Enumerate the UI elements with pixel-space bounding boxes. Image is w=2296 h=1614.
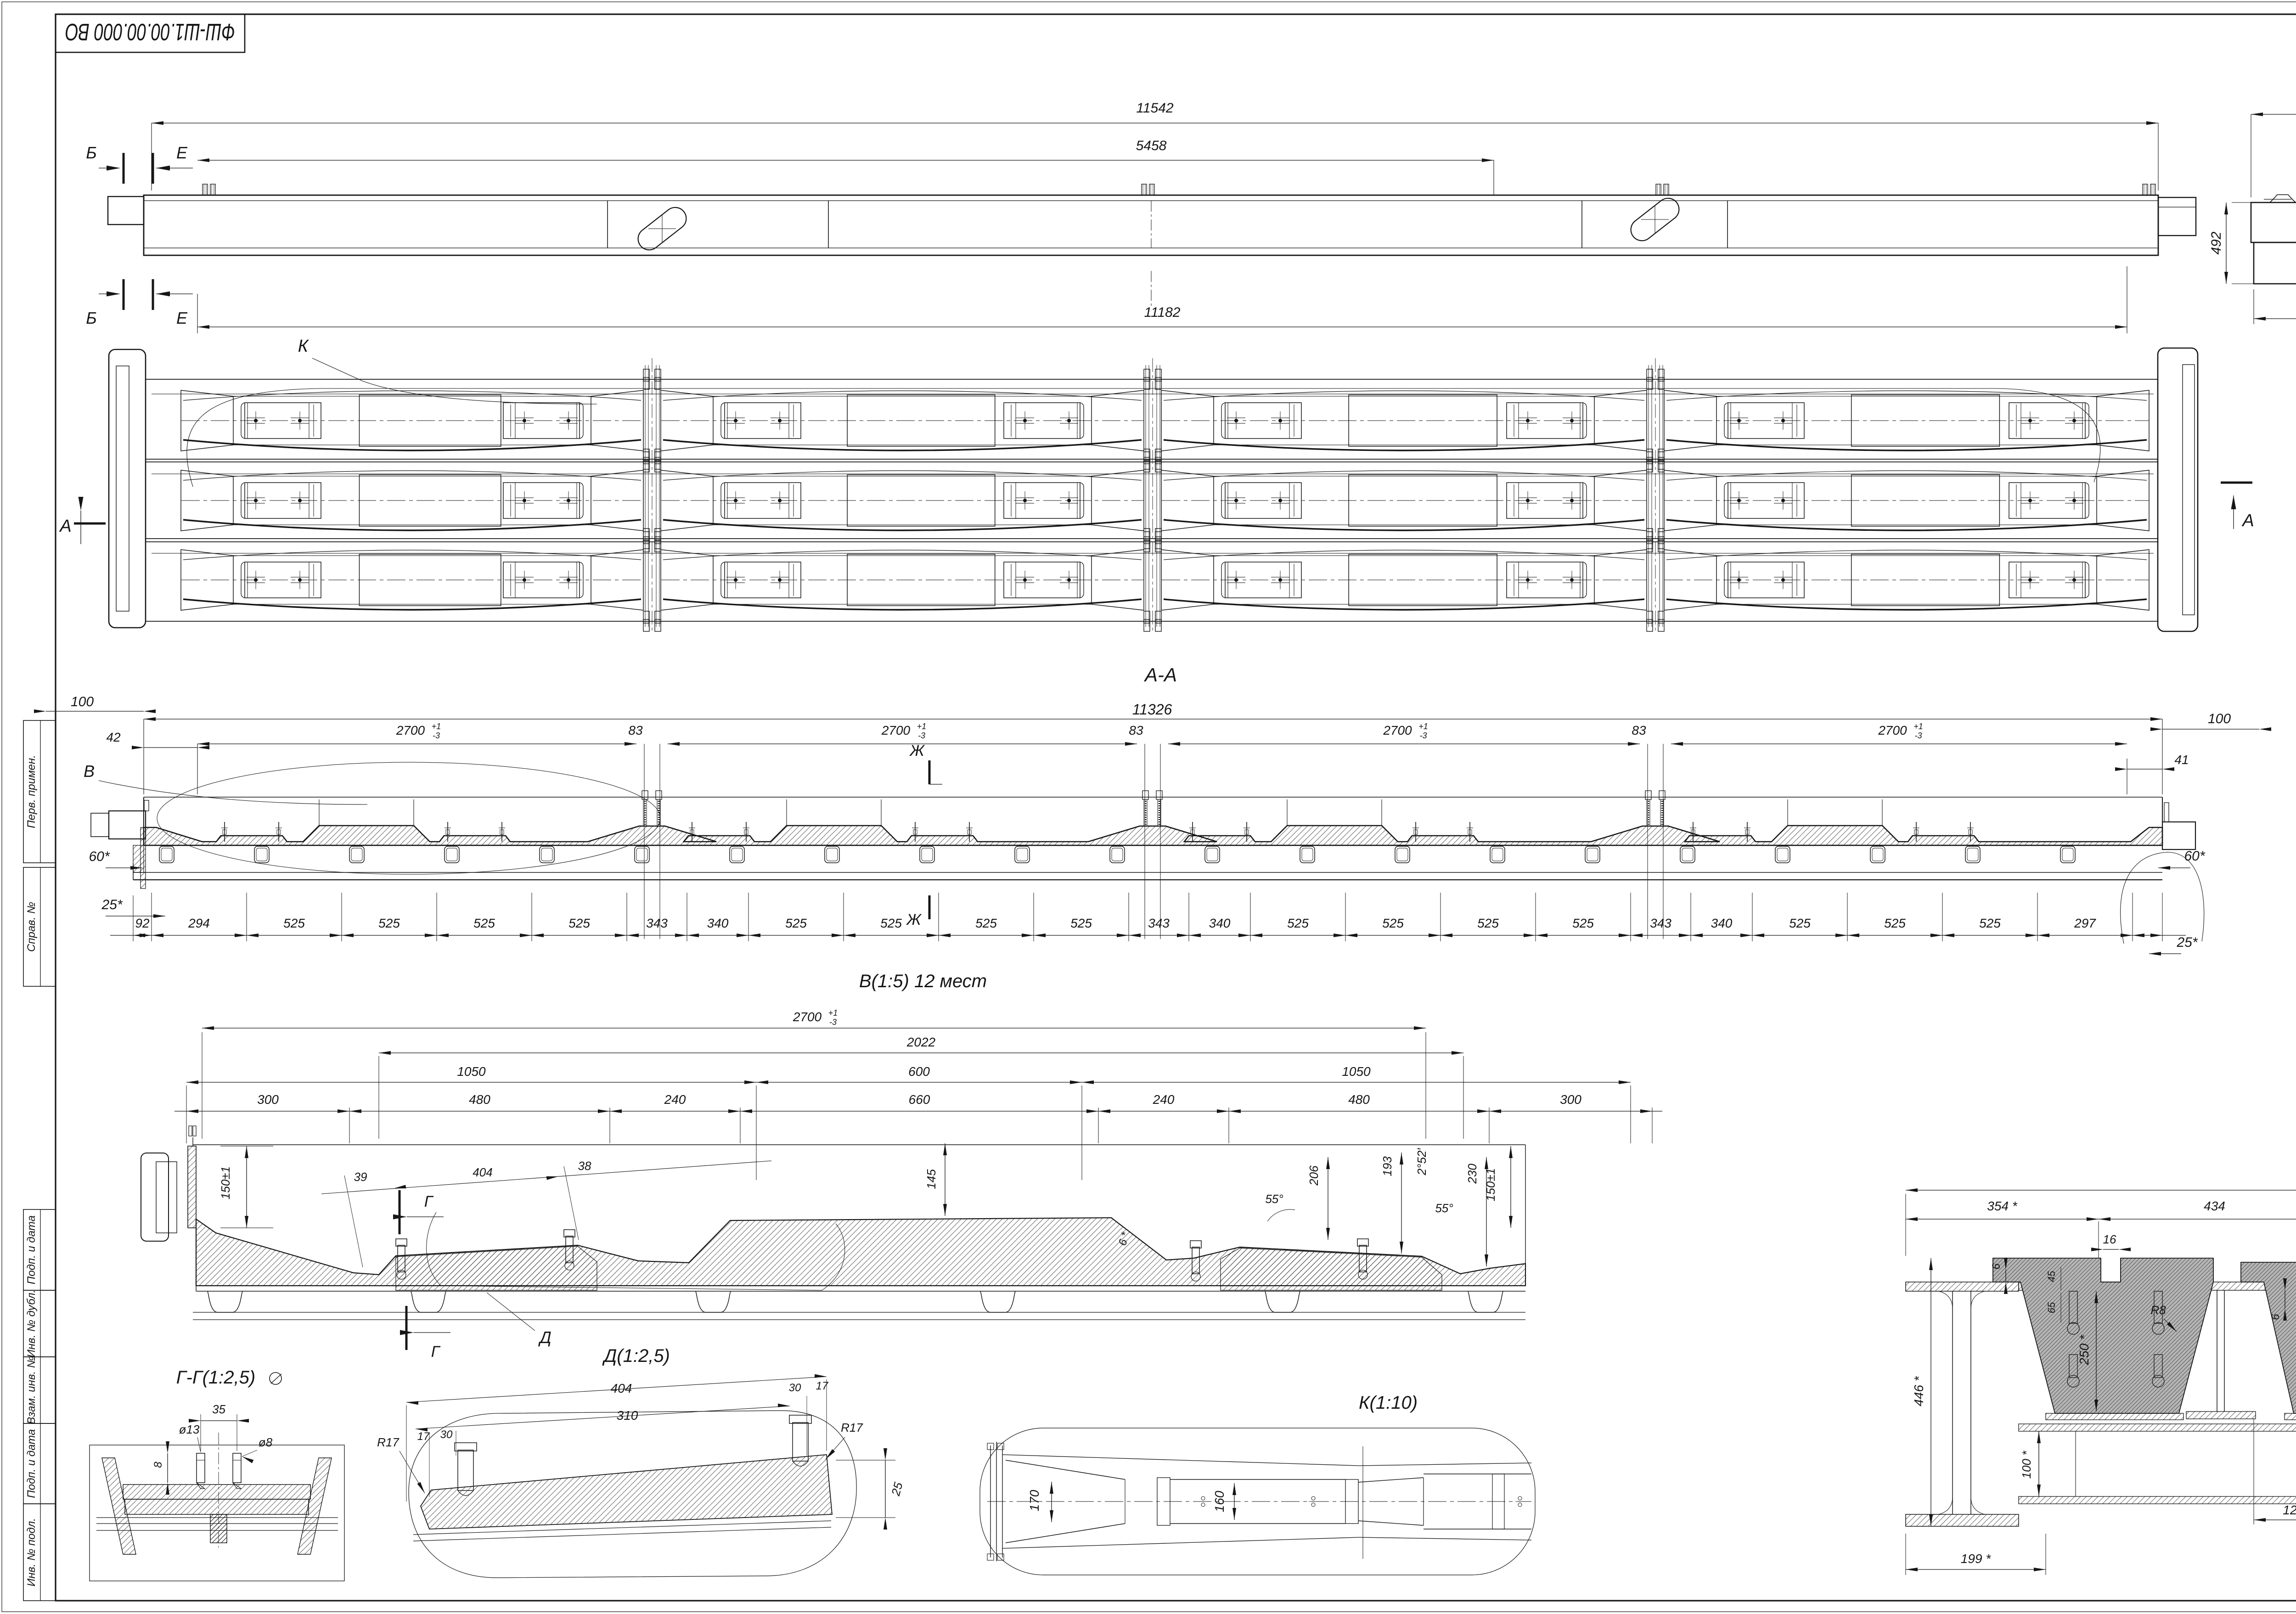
svg-text:А-А: А-А [1143, 664, 1177, 686]
svg-text:R8: R8 [2150, 1303, 2166, 1317]
svg-text:А: А [59, 517, 71, 536]
svg-text:+1: +1 [828, 1008, 838, 1018]
svg-text:2700: 2700 [396, 723, 425, 737]
svg-text:434: 434 [2204, 1199, 2225, 1213]
svg-text:+1: +1 [432, 722, 441, 731]
svg-text:Б: Б [86, 309, 96, 327]
svg-text:Ж: Ж [906, 911, 922, 928]
svg-text:2700: 2700 [1878, 723, 1907, 737]
svg-text:8: 8 [152, 1462, 164, 1468]
svg-text:404: 404 [473, 1165, 492, 1179]
svg-text:Д(1:2,5): Д(1:2,5) [602, 1346, 670, 1366]
svg-text:55°: 55° [1265, 1192, 1283, 1206]
svg-text:100 *: 100 * [2020, 1451, 2033, 1479]
svg-text:25*: 25* [101, 897, 123, 912]
svg-text:340: 340 [707, 916, 729, 930]
svg-text:ФШ-Ш1.00.00.000 ВО: ФШ-Ш1.00.00.000 ВО [65, 18, 235, 45]
svg-text:525: 525 [1789, 916, 1811, 930]
svg-text:1050: 1050 [1342, 1064, 1371, 1079]
svg-text:25*: 25* [2176, 935, 2198, 950]
svg-text:Б: Б [86, 143, 96, 162]
svg-text:193: 193 [1380, 1156, 1394, 1176]
svg-text:525: 525 [568, 916, 590, 930]
svg-text:83: 83 [1632, 723, 1646, 737]
svg-text:525: 525 [785, 916, 807, 930]
svg-text:525: 525 [378, 916, 400, 930]
svg-text:100: 100 [71, 694, 94, 709]
svg-text:525: 525 [1382, 916, 1404, 930]
svg-text:525: 525 [1979, 916, 2001, 930]
svg-text:160: 160 [1212, 1490, 1227, 1512]
svg-text:42: 42 [106, 730, 121, 744]
svg-text:480: 480 [1348, 1092, 1370, 1107]
svg-text:250 *: 250 * [2077, 1334, 2091, 1365]
svg-text:Д: Д [538, 1328, 551, 1347]
svg-text:В(1:5) 12 мест: В(1:5) 12 мест [859, 971, 987, 991]
svg-text:30: 30 [789, 1382, 801, 1394]
svg-text:Подп. и дата: Подп. и дата [25, 1429, 38, 1498]
svg-text:294: 294 [188, 916, 210, 930]
svg-text:Перв. примен.: Перв. примен. [25, 755, 38, 828]
svg-text:343: 343 [1148, 916, 1170, 930]
svg-text:310: 310 [617, 1408, 638, 1423]
svg-text:240: 240 [664, 1092, 686, 1107]
svg-text:446 *: 446 * [1912, 1376, 1926, 1406]
svg-text:525: 525 [283, 916, 305, 930]
svg-text:60*: 60* [89, 849, 110, 864]
svg-text:525: 525 [1477, 916, 1499, 930]
svg-text:343: 343 [1650, 916, 1671, 930]
svg-text:404: 404 [611, 1381, 632, 1395]
svg-text:Взам. инв. №: Взам. инв. № [25, 1356, 38, 1424]
svg-text:-3: -3 [918, 731, 925, 740]
svg-text:240: 240 [1153, 1092, 1175, 1107]
svg-text:16: 16 [2103, 1232, 2116, 1246]
svg-text:Г-Г(1:2,5): Г-Г(1:2,5) [176, 1367, 255, 1388]
svg-text:199 *: 199 * [1961, 1552, 1991, 1566]
svg-text:2022: 2022 [906, 1035, 936, 1049]
svg-text:525: 525 [473, 916, 495, 930]
svg-text:38: 38 [578, 1159, 591, 1173]
svg-text:145: 145 [924, 1169, 938, 1189]
svg-text:+1: +1 [1913, 722, 1923, 731]
svg-text:17: 17 [816, 1380, 829, 1392]
svg-text:297: 297 [2074, 916, 2096, 930]
svg-text:К: К [298, 337, 310, 356]
svg-text:525: 525 [1070, 916, 1092, 930]
svg-text:492: 492 [2209, 231, 2224, 254]
svg-text:83: 83 [628, 723, 643, 737]
svg-text:Г: Г [431, 1343, 441, 1361]
svg-text:Е: Е [176, 143, 188, 162]
svg-text:+1: +1 [1418, 722, 1428, 731]
svg-text:Е: Е [176, 309, 188, 327]
svg-text:660: 660 [909, 1092, 930, 1107]
svg-text:340: 340 [1209, 916, 1231, 930]
svg-text:ø13: ø13 [179, 1423, 200, 1436]
svg-text:17: 17 [417, 1430, 430, 1443]
svg-text:2700: 2700 [1383, 723, 1412, 737]
svg-text:41: 41 [2174, 753, 2189, 767]
svg-text:525: 525 [880, 916, 902, 930]
svg-text:R17: R17 [377, 1435, 400, 1449]
svg-text:60*: 60* [2184, 849, 2205, 864]
svg-text:300: 300 [257, 1092, 279, 1107]
svg-text:-3: -3 [1914, 731, 1922, 740]
svg-text:150±1: 150±1 [219, 1166, 232, 1199]
svg-text:480: 480 [469, 1092, 490, 1107]
svg-text:100: 100 [2208, 711, 2231, 726]
svg-text:30: 30 [440, 1428, 453, 1441]
svg-text:+1: +1 [917, 722, 927, 731]
svg-text:125 *: 125 * [2283, 1503, 2296, 1517]
svg-text:6: 6 [2269, 1314, 2282, 1320]
svg-text:92: 92 [135, 916, 150, 930]
svg-text:Ж: Ж [909, 742, 925, 759]
svg-text:230: 230 [1465, 1164, 1479, 1184]
svg-text:-3: -3 [1419, 731, 1427, 740]
svg-text:39: 39 [354, 1170, 367, 1184]
svg-text:Подп. и дата: Подп. и дата [25, 1215, 38, 1284]
svg-text:R17: R17 [841, 1421, 863, 1434]
svg-text:170: 170 [1027, 1490, 1041, 1511]
svg-text:83: 83 [1129, 723, 1143, 737]
svg-text:45: 45 [2046, 1271, 2057, 1282]
svg-text:600: 600 [908, 1064, 930, 1079]
svg-text:150±1: 150±1 [1484, 1168, 1497, 1201]
svg-text:Инв. № подл.: Инв. № подл. [25, 1518, 38, 1586]
svg-text:300: 300 [1560, 1092, 1581, 1107]
svg-text:Справ. №: Справ. № [25, 902, 38, 952]
svg-text:340: 340 [1711, 916, 1733, 930]
svg-text:-3: -3 [829, 1018, 837, 1027]
svg-text:2700: 2700 [881, 723, 911, 737]
svg-text:343: 343 [646, 916, 668, 930]
svg-text:Г: Г [424, 1193, 434, 1210]
svg-text:525: 525 [975, 916, 997, 930]
svg-text:525: 525 [1572, 916, 1594, 930]
svg-text:Инв. № дубл.: Инв. № дубл. [25, 1290, 38, 1358]
svg-text:2°52′: 2°52′ [1415, 1148, 1429, 1176]
svg-text:К(1:10): К(1:10) [1359, 1393, 1418, 1413]
svg-text:525: 525 [1884, 916, 1906, 930]
svg-text:525: 525 [1287, 916, 1309, 930]
svg-text:35: 35 [212, 1402, 225, 1416]
svg-text:5458: 5458 [1136, 138, 1167, 153]
svg-text:65: 65 [2046, 1302, 2057, 1313]
svg-text:206: 206 [1307, 1165, 1321, 1186]
svg-text:11326: 11326 [1132, 701, 1172, 718]
svg-text:2700: 2700 [793, 1010, 822, 1024]
svg-text:6: 6 [1990, 1263, 2003, 1270]
svg-text:354 *: 354 * [1987, 1199, 2017, 1213]
svg-text:А: А [2241, 511, 2254, 530]
svg-text:11182: 11182 [1144, 305, 1181, 320]
svg-text:11542: 11542 [1136, 101, 1174, 116]
svg-text:-3: -3 [433, 731, 440, 740]
svg-text:55°: 55° [1435, 1201, 1453, 1215]
svg-text:ø8: ø8 [259, 1435, 273, 1449]
svg-text:1050: 1050 [457, 1064, 486, 1079]
svg-text:В: В [84, 762, 95, 781]
